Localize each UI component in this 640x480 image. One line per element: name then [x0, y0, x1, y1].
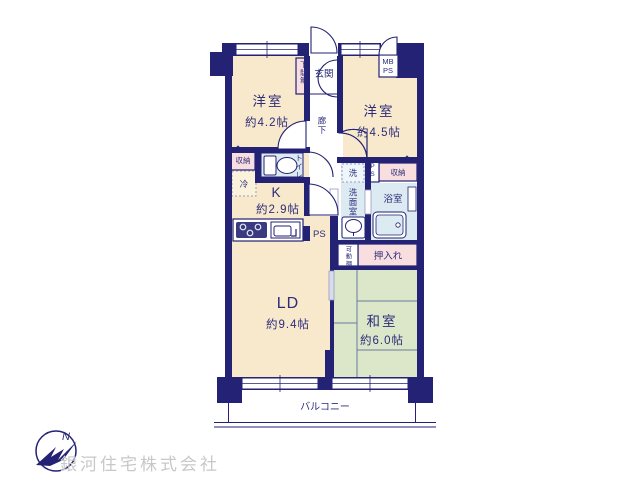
mbps-door-arc [379, 37, 397, 55]
wall [330, 216, 338, 270]
wall [325, 350, 334, 377]
bathtub-icon [373, 212, 406, 238]
label-living: LD [277, 295, 299, 312]
label-western1: 洋室 [253, 93, 284, 109]
wall [337, 240, 424, 244]
label-ps-kitchen: PS [313, 229, 326, 240]
label-storage-left: 収納 [236, 155, 251, 165]
wall [396, 43, 424, 78]
label-toilet: トイレ [295, 154, 304, 180]
washbasin-icon [342, 217, 365, 238]
label-bath: 浴室 [383, 193, 402, 205]
label-storage-right: 収納 [391, 167, 406, 177]
label-western2: 洋室 [364, 103, 395, 119]
wall [408, 377, 433, 403]
toilet-icon [264, 156, 297, 175]
label-kitchen: K [271, 185, 282, 200]
compass-north-label: N [62, 431, 70, 443]
kitchen-sink-icon [271, 222, 300, 238]
label-entrance: 玄関 [314, 68, 333, 80]
wall [225, 52, 232, 384]
entrance-door-arc [311, 27, 337, 53]
label-mb-ps: PS [383, 66, 393, 75]
stove-icon [236, 222, 267, 238]
label-hallway: 廊下 [317, 115, 327, 135]
label-ps-washroom: PS [369, 163, 376, 179]
wall [217, 377, 242, 403]
label-western1-size: 約4.2帖 [245, 115, 289, 129]
label-washroom: 洗面室 [348, 187, 358, 216]
label-balcony: バルコニー [300, 401, 350, 413]
label-japanese: 和室 [367, 313, 398, 329]
window-japanese [332, 375, 408, 392]
label-kitchen-size: 約2.9帖 [256, 202, 300, 216]
watermark: 銀河住宅株式会社 [60, 455, 220, 474]
label-movable-shelf: 可動棚 [345, 246, 352, 268]
window-western1 [236, 41, 298, 58]
bath-niche [408, 187, 416, 211]
wall [337, 56, 343, 133]
bath-door [365, 190, 371, 214]
sliding-door-japanese [329, 271, 334, 300]
label-washer: 洗 [349, 168, 358, 178]
kitchen-counter [233, 219, 303, 241]
window-living [242, 375, 318, 392]
label-japanese-size: 約6.0帖 [360, 333, 404, 347]
wall [417, 43, 424, 384]
floor-plan: 洋室 約4.2帖 洋室 約4.5帖 K 約2.9帖 LD 約9.4帖 和室 約6… [0, 0, 640, 480]
label-mb: MB [382, 57, 393, 66]
floor-plan-page: 洋室 約4.2帖 洋室 約4.5帖 K 約2.9帖 LD 約9.4帖 和室 約6… [0, 0, 640, 480]
label-fridge: 冷 [240, 179, 249, 189]
label-living-size: 約9.4帖 [266, 317, 310, 331]
window-western2 [341, 41, 380, 58]
label-closet: 押入れ [374, 250, 403, 262]
label-western2-size: 約4.5帖 [357, 125, 401, 139]
